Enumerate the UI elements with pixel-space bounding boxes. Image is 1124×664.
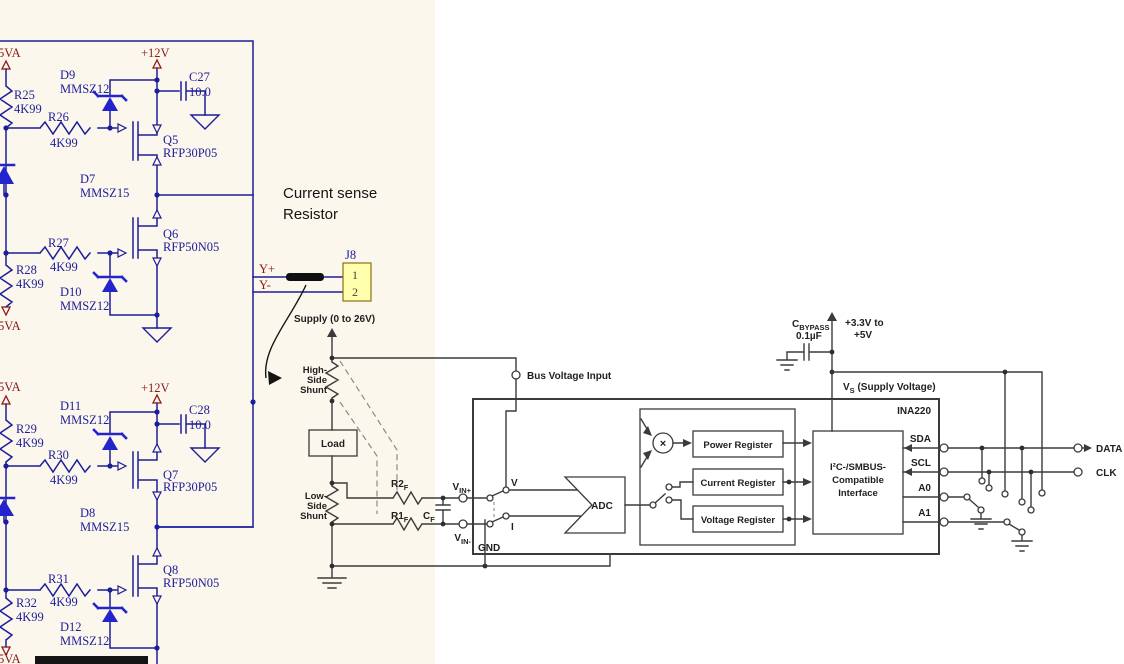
- supply-arrow-icon: [327, 328, 337, 337]
- i2c-interface-block: I²C-/SMBUS- Compatible Interface: [813, 431, 903, 534]
- current-register-label: Current Register: [701, 478, 776, 489]
- value-r32: 4K99: [16, 610, 44, 624]
- value-c27: 10.0: [189, 85, 211, 99]
- refdes-j8: J8: [345, 248, 356, 262]
- a1-pin-label: A1: [918, 508, 931, 519]
- voltage-register-label: Voltage Register: [701, 515, 776, 526]
- i-switch-label: I: [511, 522, 514, 533]
- annotation-line2: Resistor: [283, 206, 338, 223]
- ground-icon: [143, 328, 171, 342]
- net-label-12v: +12V: [141, 381, 170, 395]
- net-label-5va: 5VA: [0, 319, 21, 333]
- pin-arrow-icon: [153, 444, 161, 452]
- zener-d9-icon: [102, 97, 118, 111]
- supply-range-label: +3.3V to: [845, 318, 884, 329]
- net-label-y-plus: Y+: [259, 262, 275, 276]
- value-r26: 4K99: [50, 136, 78, 150]
- refdes-r27: R27: [48, 236, 69, 250]
- schematic-canvas: 5VA +12V 5VA R25 4K99 R26 4K99 D9 MMSZ12…: [0, 0, 1124, 664]
- supply-range-label: +5V: [854, 330, 872, 341]
- vin-plus-label: VIN+: [452, 482, 471, 495]
- pin-arrow-icon: [153, 258, 161, 266]
- high-side-shunt-label: Shunt: [300, 385, 328, 396]
- j8-pin-2: 2: [352, 285, 358, 299]
- cf-label: CF: [423, 511, 435, 524]
- power-arrow-icon: [2, 61, 10, 69]
- low-side-shunt-label: Shunt: [300, 511, 328, 522]
- data-output-label: DATA: [1096, 444, 1122, 455]
- value-d7: MMSZ15: [80, 186, 129, 200]
- chip-name-label: INA220: [897, 406, 931, 417]
- pin-arrow-icon: [153, 548, 161, 556]
- clk-output-label: CLK: [1096, 468, 1117, 479]
- value-q6: RFP50N05: [163, 240, 219, 254]
- refdes-r32: R32: [16, 596, 37, 610]
- pin-arrow-icon: [153, 596, 161, 604]
- scl-pin-label: SCL: [911, 458, 931, 469]
- value-r31: 4K99: [50, 595, 78, 609]
- vin-plus-pin: [459, 494, 467, 502]
- input-mux-switches: V I GND: [459, 379, 693, 566]
- schematic-drawing: 5VA +12V 5VA R25 4K99 R26 4K99 D9 MMSZ12…: [0, 0, 1124, 664]
- value-r30: 4K99: [50, 473, 78, 487]
- bus-voltage-terminal: [512, 371, 520, 379]
- value-q7: RFP30P05: [163, 480, 217, 494]
- refdes-q6: Q6: [163, 227, 178, 241]
- scl-arrow-icon: [904, 468, 912, 476]
- refdes-q5: Q5: [163, 133, 178, 147]
- value-d11: MMSZ12: [60, 413, 109, 427]
- bus-voltage-input-label: Bus Voltage Input: [527, 371, 612, 382]
- vs-supply-label: VS (Supply Voltage): [843, 382, 936, 395]
- power-register-label: Power Register: [703, 440, 772, 451]
- refdes-c28: C28: [189, 403, 210, 417]
- current-sense-resistor-bar: [286, 273, 324, 281]
- refdes-d7: D7: [80, 172, 95, 186]
- refdes-r25: R25: [14, 88, 35, 102]
- a1-selector-switch: [1004, 519, 1010, 525]
- value-d9: MMSZ12: [60, 82, 109, 96]
- zener-d11-icon: [102, 436, 118, 450]
- net-label-5va: 5VA: [0, 380, 21, 394]
- pin-arrow-icon: [153, 492, 161, 500]
- refdes-r26: R26: [48, 110, 69, 124]
- v-switch-label: V: [511, 478, 518, 489]
- value-q8: RFP50N05: [163, 576, 219, 590]
- vin-minus-pin: [459, 520, 467, 528]
- gnd-pin-label: GND: [478, 543, 500, 554]
- pin-arrow-icon: [153, 125, 161, 133]
- supply-label: Supply (0 to 26V): [294, 314, 375, 325]
- alternate-connection-dashed: [340, 361, 397, 514]
- value-r29: 4K99: [16, 436, 44, 450]
- annotation-arrow: [266, 285, 306, 378]
- power-arrow-icon: [153, 395, 161, 403]
- gate-arrow-icon: [118, 124, 126, 132]
- zener-d8-icon: [0, 499, 14, 516]
- refdes-r29: R29: [16, 422, 37, 436]
- register-bank: × Power Register Current Register Voltag…: [640, 409, 812, 545]
- net-label-12v: +12V: [141, 46, 170, 60]
- value-r25: 4K99: [14, 102, 42, 116]
- data-terminal: [1074, 444, 1082, 452]
- value-r28: 4K99: [16, 277, 44, 291]
- digital-pins-group: SDA SCL A0 A1 DATA: [832, 370, 1122, 551]
- value-c28: 10.0: [189, 418, 211, 432]
- refdes-d9: D9: [60, 68, 75, 82]
- annotation-arrowhead-icon: [268, 371, 282, 385]
- refdes-d8: D8: [80, 506, 95, 520]
- a1-terminal: [940, 518, 948, 526]
- cbypass-value: 0.1µF: [796, 331, 822, 342]
- interface-label: Compatible: [832, 475, 884, 486]
- refdes-d11: D11: [60, 399, 81, 413]
- interface-label: Interface: [838, 488, 878, 499]
- refdes-r30: R30: [48, 448, 69, 462]
- vin-minus-label: VIN-: [454, 533, 471, 546]
- sda-arrow-icon: [904, 444, 912, 452]
- power-arrow-icon: [2, 396, 10, 404]
- gate-arrow-icon: [118, 586, 126, 594]
- r2f-label: R2F: [391, 479, 409, 492]
- refdes-q8: Q8: [163, 563, 178, 577]
- gate-arrow-icon: [118, 249, 126, 257]
- j8-pin-1: 1: [352, 268, 358, 282]
- connector-j8-group: J8 1 2 Y+ Y-: [259, 248, 371, 301]
- ground-icon: [191, 448, 219, 462]
- a0-terminal: [940, 493, 948, 501]
- a0-pin-label: A0: [918, 483, 931, 494]
- vs-arrow-icon: [827, 312, 837, 321]
- pin-arrow-icon: [153, 210, 161, 218]
- scl-terminal: [940, 468, 948, 476]
- gate-arrow-icon: [118, 462, 126, 470]
- data-arrow-icon: [1084, 444, 1092, 452]
- multiplier-symbol: ×: [660, 438, 666, 450]
- value-q5: RFP30P05: [163, 146, 217, 160]
- sda-pin-label: SDA: [910, 434, 931, 445]
- value-d8: MMSZ15: [80, 520, 129, 534]
- zener-d10-icon: [102, 278, 118, 292]
- ground-icon: [191, 115, 219, 129]
- clk-terminal: [1074, 468, 1082, 476]
- power-arrow-icon: [153, 60, 161, 68]
- interface-label: I²C-/SMBUS-: [830, 462, 886, 473]
- value-r27: 4K99: [50, 260, 78, 274]
- power-arrow-icon: [2, 307, 10, 315]
- adc-label: ADC: [591, 501, 613, 512]
- refdes-c27: C27: [189, 70, 210, 84]
- load-label: Load: [321, 439, 345, 450]
- pin-arrow-icon: [153, 157, 161, 165]
- a0-selector-switch: [964, 494, 970, 500]
- sda-terminal: [940, 444, 948, 452]
- net-label-y-minus: Y-: [259, 278, 271, 292]
- value-d10: MMSZ12: [60, 299, 109, 313]
- cropped-element-bar: [35, 656, 148, 664]
- zener-d7-icon: [0, 166, 14, 184]
- zener-d12-icon: [102, 609, 118, 622]
- annotation-line1: Current sense: [283, 185, 377, 202]
- net-label-5va: 5VA: [0, 46, 21, 60]
- refdes-r31: R31: [48, 572, 69, 586]
- lower-driver-circuit: 5VA +12V 5VA R29 4K99 R30 4K99 D11 MMSZ1…: [0, 380, 253, 664]
- value-d12: MMSZ12: [60, 634, 109, 648]
- refdes-r28: R28: [16, 263, 37, 277]
- net-label-5va: 5VA: [0, 652, 21, 664]
- refdes-d10: D10: [60, 285, 82, 299]
- refdes-d12: D12: [60, 620, 82, 634]
- ina220-application-figure: Supply (0 to 26V) High- Side Shunt Load …: [294, 312, 1122, 588]
